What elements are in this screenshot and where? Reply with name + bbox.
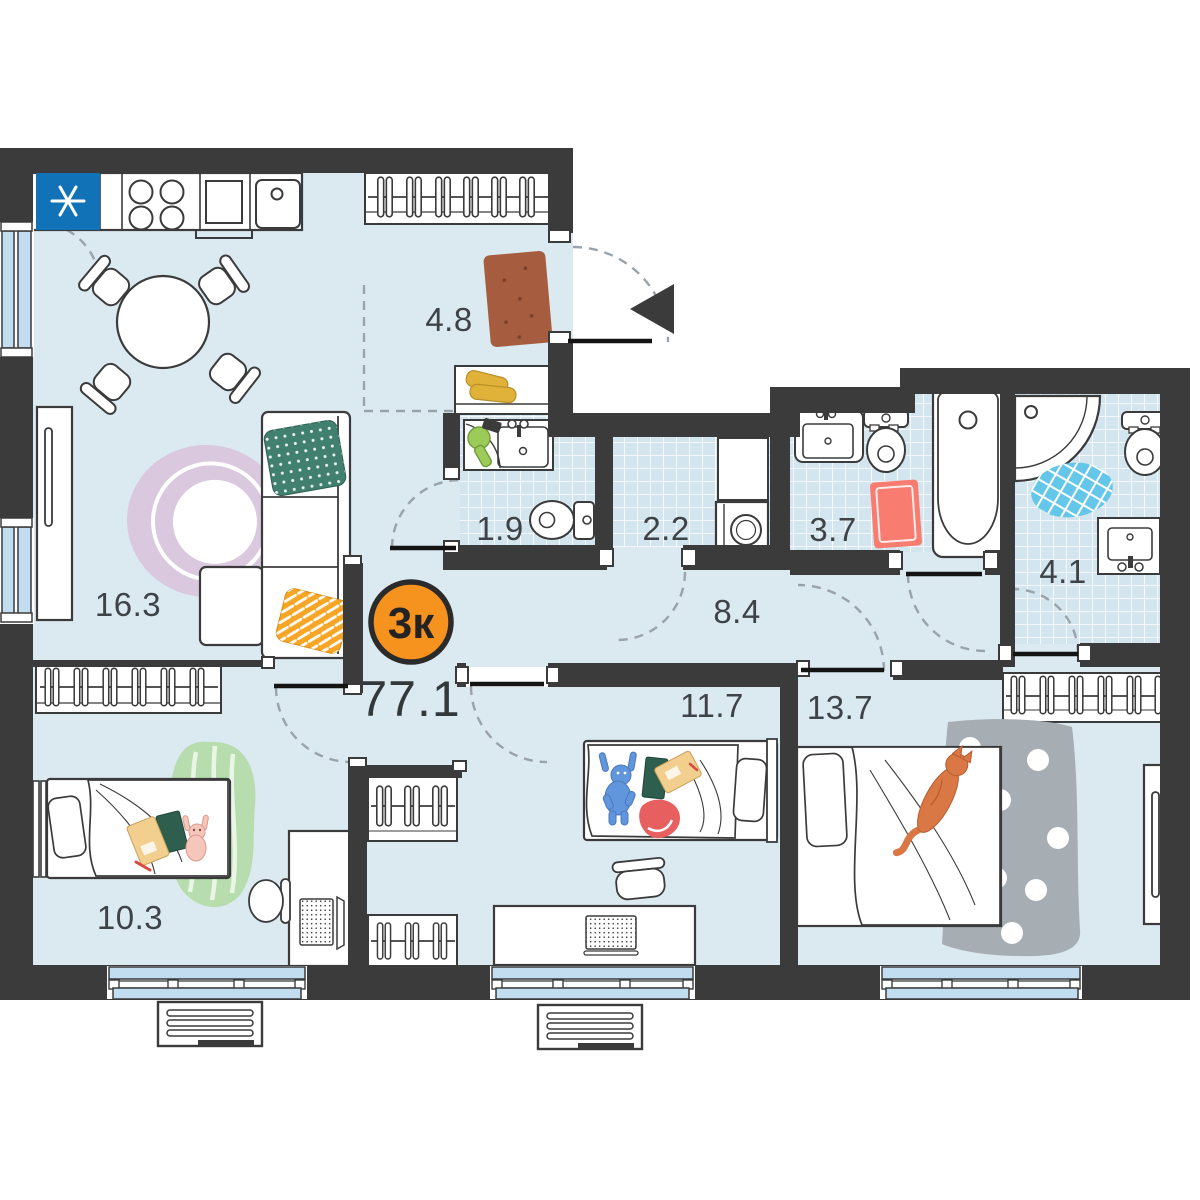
window [880,966,1082,999]
desk [289,831,350,966]
desk [494,906,695,965]
ac-unit-icon [538,1005,642,1049]
window [0,518,34,624]
ac-unit-icon [158,1002,262,1046]
room-label-bedroom-3: 13.7 [807,689,873,726]
window [490,966,695,999]
bathtub-icon [933,385,1003,557]
room-label-hallway: 4.8 [425,301,472,338]
bed-double [786,742,1001,926]
floor-plan-page: 16.3 4.8 1.9 2.2 3.7 8.4 4.1 10.3 11.7 1… [0,0,1200,1200]
entrance-arrow-icon [630,284,674,334]
room-label-bathroom: 3.7 [809,511,856,548]
window [0,222,34,357]
bedroom3-wardrobe [1003,673,1179,722]
bed-single [584,739,777,842]
washbasin-icon [1098,518,1160,574]
living-cabinet [37,407,72,620]
kitchen-sink-icon [256,180,300,228]
shoe-shelf [455,366,553,414]
desk-chair [249,879,290,923]
laundry-cabinet [718,438,768,500]
doormat [483,250,553,347]
room-label-living: 16.3 [95,586,161,623]
toilet-icon [530,501,594,539]
apartment-badge: 3к [371,582,451,662]
bath-mat-red [870,479,922,548]
bathroom-small-sink [464,417,553,470]
bed-single [33,779,230,878]
hallway-wardrobe [365,173,553,224]
toilet-icon [864,410,908,472]
pillow-green [263,419,347,497]
bathroom-sink [795,410,863,462]
badge-label: 3к [388,599,435,648]
window [107,966,307,999]
room-label-corridor: 8.4 [713,593,760,630]
room-label-bedroom-1: 10.3 [97,899,163,936]
desk-chair [612,857,668,900]
room-label-bathroom-master: 4.1 [1039,553,1086,590]
fridge-icon [36,173,100,230]
room-label-laundry: 2.2 [642,510,689,547]
room-label-bathroom-small: 1.9 [476,510,523,547]
floor-plan: 16.3 4.8 1.9 2.2 3.7 8.4 4.1 10.3 11.7 1… [0,0,1200,1200]
kitchen-counter [28,173,302,238]
room-label-bedroom-2: 11.7 [680,687,744,724]
total-area-label: 77.1 [359,671,460,727]
bedroom1-wardrobe [36,666,221,713]
